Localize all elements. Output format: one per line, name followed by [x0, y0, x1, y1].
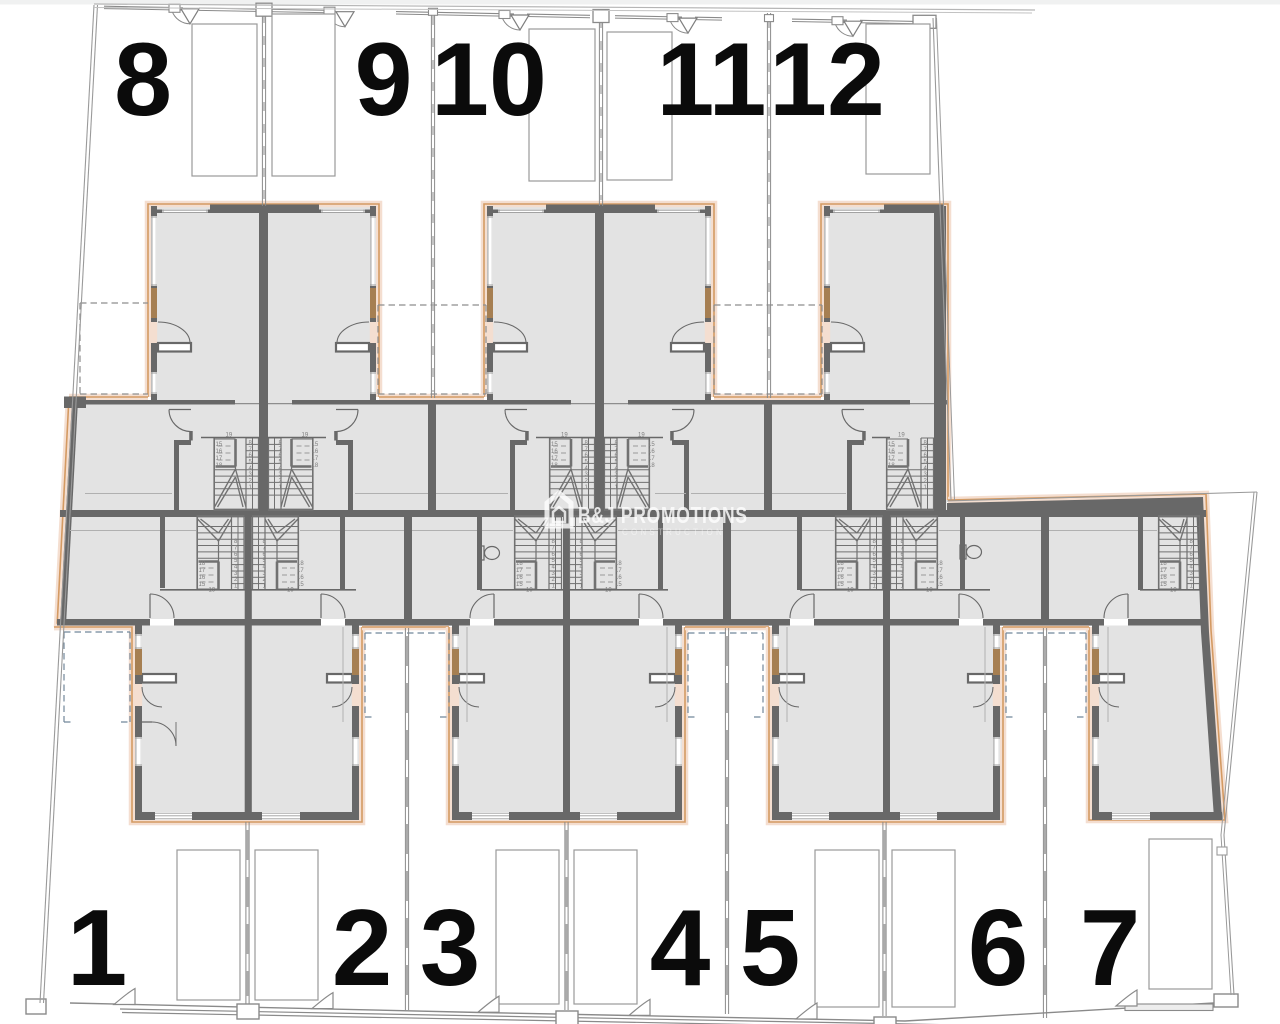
svg-text:18: 18 — [615, 561, 622, 567]
svg-text:7: 7 — [1080, 887, 1141, 1009]
svg-text:18: 18 — [1160, 561, 1167, 567]
svg-text:15: 15 — [312, 442, 319, 448]
svg-text:17: 17 — [551, 456, 558, 462]
svg-text:17: 17 — [837, 568, 844, 574]
svg-text:16: 16 — [837, 575, 844, 581]
svg-text:5: 5 — [740, 887, 801, 1009]
svg-text:16: 16 — [615, 575, 622, 581]
svg-text:16: 16 — [888, 449, 895, 455]
svg-text:18: 18 — [551, 463, 558, 469]
svg-text:18: 18 — [516, 561, 523, 567]
svg-text:16: 16 — [199, 575, 206, 581]
svg-text:15: 15 — [615, 582, 622, 588]
svg-text:18: 18 — [312, 463, 319, 469]
svg-text:3: 3 — [420, 887, 481, 1009]
svg-text:17: 17 — [216, 456, 223, 462]
svg-text:18: 18 — [837, 561, 844, 567]
svg-text:15: 15 — [1160, 582, 1167, 588]
svg-text:15: 15 — [648, 442, 655, 448]
svg-text:15: 15 — [888, 442, 895, 448]
svg-text:16: 16 — [297, 575, 304, 581]
svg-text:18: 18 — [297, 561, 304, 567]
svg-text:15: 15 — [837, 582, 844, 588]
svg-text:11: 11 — [657, 22, 767, 138]
svg-text:15: 15 — [216, 442, 223, 448]
svg-text:2: 2 — [332, 887, 393, 1009]
svg-text:B&J PROMOTIONS: B&J PROMOTIONS — [578, 504, 748, 529]
svg-text:16: 16 — [1160, 575, 1167, 581]
svg-text:4: 4 — [650, 887, 711, 1009]
svg-text:15: 15 — [199, 582, 206, 588]
svg-text:CONSTRUCTION: CONSTRUCTION — [622, 527, 725, 538]
svg-text:17: 17 — [1160, 568, 1167, 574]
svg-text:19: 19 — [898, 433, 905, 439]
svg-text:15: 15 — [936, 582, 943, 588]
svg-text:17: 17 — [297, 568, 304, 574]
svg-text:17: 17 — [648, 456, 655, 462]
svg-text:18: 18 — [648, 463, 655, 469]
svg-text:18: 18 — [216, 463, 223, 469]
svg-text:17: 17 — [516, 568, 523, 574]
svg-text:6: 6 — [968, 887, 1029, 1009]
svg-text:16: 16 — [516, 575, 523, 581]
svg-text:16: 16 — [312, 449, 319, 455]
svg-text:18: 18 — [888, 463, 895, 469]
svg-text:16: 16 — [936, 575, 943, 581]
svg-text:17: 17 — [312, 456, 319, 462]
svg-text:17: 17 — [936, 568, 943, 574]
svg-text:16: 16 — [648, 449, 655, 455]
svg-text:15: 15 — [516, 582, 523, 588]
svg-text:18: 18 — [936, 561, 943, 567]
svg-text:15: 15 — [551, 442, 558, 448]
svg-text:10: 10 — [431, 22, 547, 138]
svg-text:16: 16 — [216, 449, 223, 455]
svg-text:16: 16 — [551, 449, 558, 455]
svg-text:17: 17 — [888, 456, 895, 462]
svg-text:15: 15 — [297, 582, 304, 588]
svg-text:18: 18 — [199, 561, 206, 567]
svg-text:9: 9 — [355, 22, 413, 138]
svg-text:1: 1 — [67, 887, 128, 1009]
svg-text:8: 8 — [114, 22, 172, 138]
svg-text:17: 17 — [615, 568, 622, 574]
svg-text:17: 17 — [199, 568, 206, 574]
svg-text:12: 12 — [769, 22, 885, 138]
